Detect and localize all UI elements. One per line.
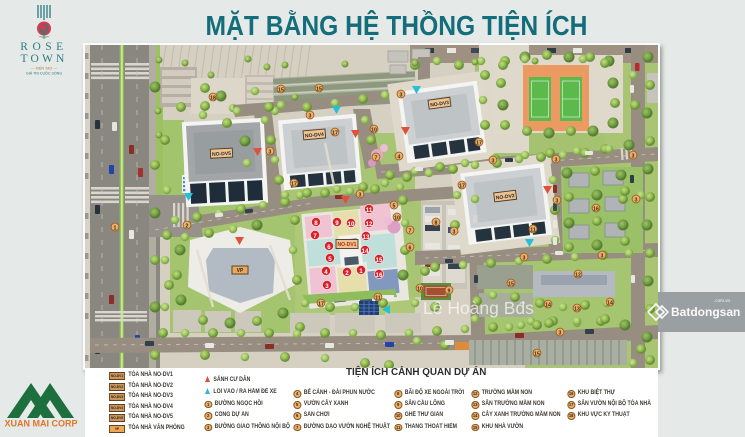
svg-text:17: 17 xyxy=(318,301,324,307)
svg-text:14: 14 xyxy=(545,302,551,308)
svg-text:GIÁ TRỊ CUỘC SỐNG: GIÁ TRỊ CUỘC SỐNG xyxy=(26,71,62,76)
svg-text:17: 17 xyxy=(291,181,297,187)
svg-text:3: 3 xyxy=(269,149,272,155)
svg-text:2: 2 xyxy=(186,223,189,229)
svg-text:17: 17 xyxy=(476,140,482,146)
svg-text:14: 14 xyxy=(607,300,613,306)
svg-text:3: 3 xyxy=(400,92,403,98)
svg-text:7: 7 xyxy=(409,228,412,234)
svg-text:11: 11 xyxy=(530,227,536,233)
svg-text:7: 7 xyxy=(313,233,317,240)
svg-text:XUAN MAI CORP: XUAN MAI CORP xyxy=(5,419,78,429)
svg-text:3: 3 xyxy=(359,192,362,198)
svg-text:6: 6 xyxy=(327,244,331,251)
svg-text:NO-DV5: NO-DV5 xyxy=(212,151,231,158)
svg-text:17: 17 xyxy=(332,130,338,136)
svg-text:3: 3 xyxy=(559,330,562,336)
svg-text:3: 3 xyxy=(635,197,638,203)
svg-text:9: 9 xyxy=(448,288,451,294)
svg-text:NO-DV1: NO-DV1 xyxy=(338,242,357,248)
svg-text:4: 4 xyxy=(324,269,328,276)
svg-text:3: 3 xyxy=(453,229,456,235)
svg-text:3: 3 xyxy=(309,113,312,119)
svg-text:18: 18 xyxy=(210,95,216,101)
svg-text:9: 9 xyxy=(335,220,339,227)
svg-text:4: 4 xyxy=(398,154,401,160)
svg-text:5: 5 xyxy=(393,203,396,209)
svg-text:8: 8 xyxy=(314,220,318,227)
svg-text:1: 1 xyxy=(114,225,117,231)
svg-text:10: 10 xyxy=(348,221,355,228)
svg-text:Batdongsan: Batdongsan xyxy=(671,305,740,319)
svg-text:13: 13 xyxy=(574,306,580,312)
svg-text:VP: VP xyxy=(237,268,244,274)
svg-text:1: 1 xyxy=(359,268,363,275)
svg-text:3: 3 xyxy=(523,255,526,261)
svg-text:10: 10 xyxy=(371,127,377,133)
svg-text:3: 3 xyxy=(601,253,604,259)
svg-text:3: 3 xyxy=(556,198,559,204)
svg-text:.com.vn: .com.vn xyxy=(714,298,731,303)
svg-text:11: 11 xyxy=(375,295,381,301)
svg-text:3: 3 xyxy=(492,158,495,164)
svg-text:3: 3 xyxy=(555,157,558,163)
svg-text:16: 16 xyxy=(593,206,599,212)
svg-text:15: 15 xyxy=(316,86,322,92)
svg-text:16: 16 xyxy=(376,272,383,279)
svg-text:7: 7 xyxy=(375,155,378,161)
svg-text:8: 8 xyxy=(435,220,438,226)
svg-text:ROSE: ROSE xyxy=(20,41,67,53)
svg-text:Lê Hoàng Bđs: Lê Hoàng Bđs xyxy=(423,298,534,318)
svg-text:17: 17 xyxy=(459,183,465,189)
svg-text:12: 12 xyxy=(575,272,581,278)
svg-text:5: 5 xyxy=(328,256,332,263)
svg-text:6: 6 xyxy=(409,245,412,251)
svg-text:12: 12 xyxy=(366,221,373,228)
svg-text:10: 10 xyxy=(417,286,423,292)
svg-text:3: 3 xyxy=(632,153,635,159)
svg-text:13: 13 xyxy=(363,234,370,241)
svg-text:2: 2 xyxy=(345,270,349,277)
svg-text:15: 15 xyxy=(508,281,514,287)
svg-text:10: 10 xyxy=(394,215,400,221)
svg-text:— KIẾN TẠO —: — KIẾN TẠO — xyxy=(31,66,57,71)
svg-text:14: 14 xyxy=(362,248,369,255)
svg-text:TOWN: TOWN xyxy=(20,53,67,65)
svg-text:3: 3 xyxy=(325,283,329,290)
svg-text:15: 15 xyxy=(534,351,540,357)
svg-text:15: 15 xyxy=(278,87,284,93)
svg-text:15: 15 xyxy=(376,257,383,264)
svg-text:11: 11 xyxy=(366,207,373,214)
